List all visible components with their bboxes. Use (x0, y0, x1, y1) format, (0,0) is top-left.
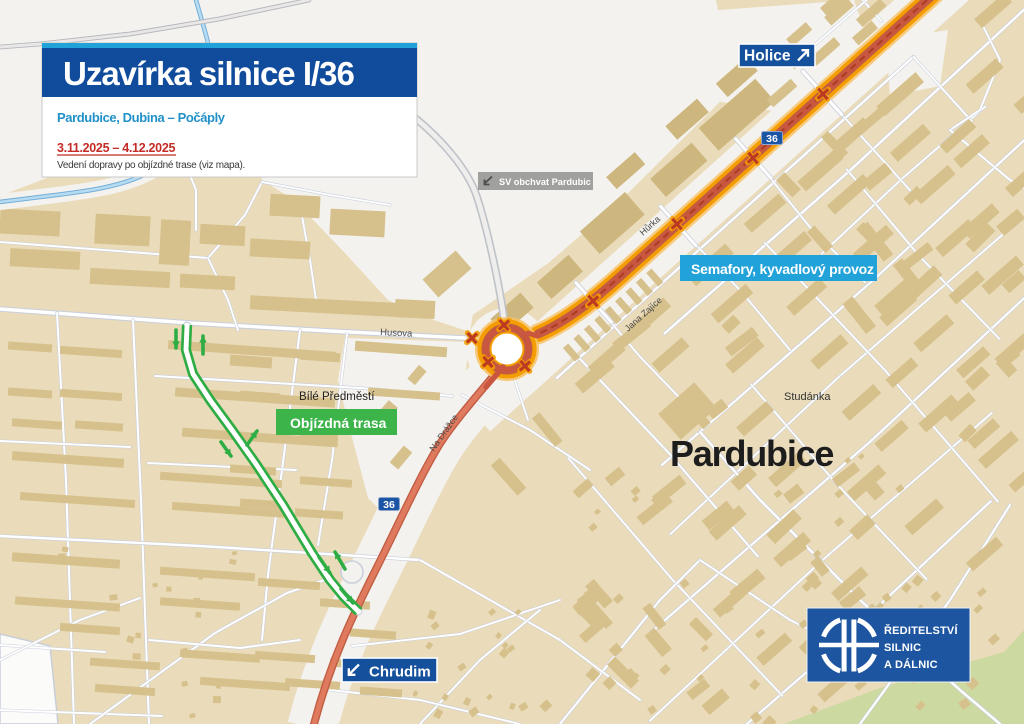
svg-text:Pardubice, Dubina – Počáply: Pardubice, Dubina – Počáply (57, 110, 226, 125)
svg-text:SV obchvat Pardubic: SV obchvat Pardubic (499, 177, 591, 187)
svg-text:Vedení dopravy po objízdné tra: Vedení dopravy po objízdné trase (viz ma… (57, 160, 245, 171)
svg-text:Studánka: Studánka (784, 391, 831, 403)
svg-text:Objízdná trasa: Objízdná trasa (290, 415, 387, 431)
svg-text:Bílé Předměstí: Bílé Předměstí (299, 391, 375, 403)
svg-text:Uzavírka silnice I/36: Uzavírka silnice I/36 (63, 55, 355, 92)
svg-text:SILNIC: SILNIC (884, 642, 921, 654)
svg-text:Semafory, kyvadlový provoz: Semafory, kyvadlový provoz (691, 261, 874, 277)
svg-text:Holice: Holice (744, 48, 791, 65)
svg-text:36: 36 (383, 499, 395, 511)
svg-text:Chrudim: Chrudim (369, 664, 431, 681)
svg-text:3.11.2025 – 4.12.2025: 3.11.2025 – 4.12.2025 (57, 141, 175, 155)
svg-text:36: 36 (766, 133, 778, 145)
svg-text:A DÁLNIC: A DÁLNIC (884, 658, 938, 671)
svg-text:Husova: Husova (380, 327, 413, 340)
svg-text:ŘEDITELSTVÍ: ŘEDITELSTVÍ (884, 624, 958, 637)
svg-text:Pardubice: Pardubice (670, 433, 833, 474)
